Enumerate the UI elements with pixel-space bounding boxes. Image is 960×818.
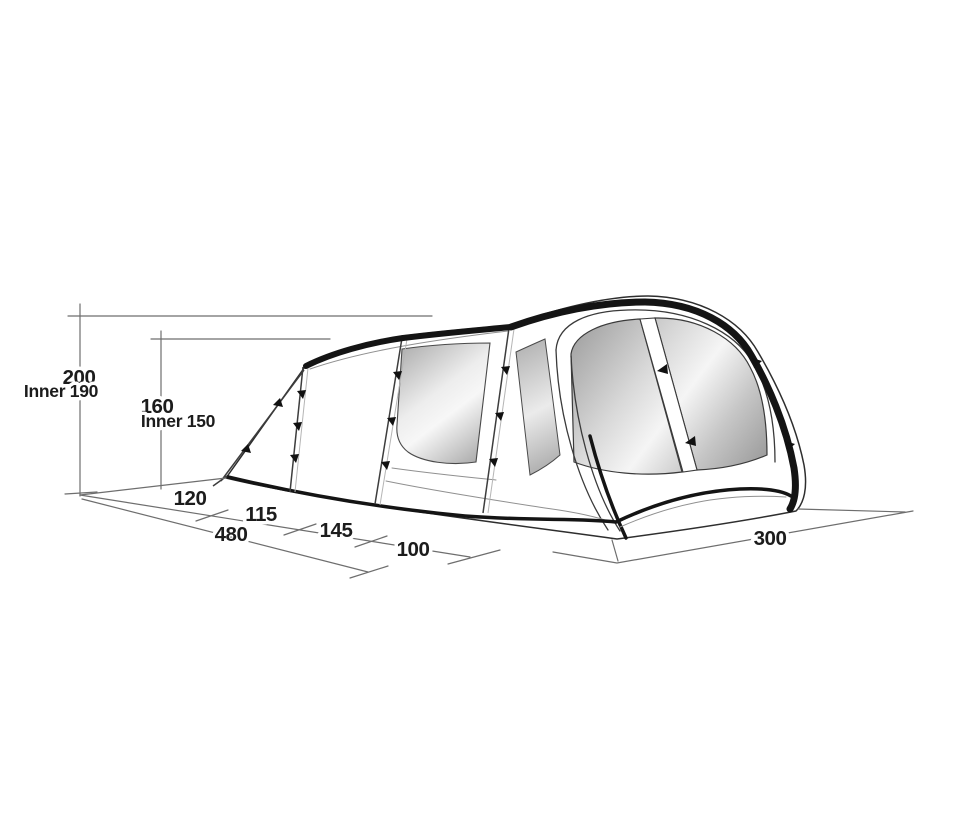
- seg-tick-end: [448, 550, 500, 564]
- stake-tick: [213, 476, 227, 486]
- label-inner-190: Inner 190: [24, 381, 99, 401]
- label-width-300: 300: [754, 527, 787, 550]
- tent-illustration: [213, 296, 806, 539]
- seg-tick-2: [284, 524, 316, 535]
- depth-480-end-tick: [350, 566, 388, 578]
- seg-tick-1: [196, 510, 228, 521]
- width-300-right-ext: [798, 509, 905, 512]
- seg-tick-3: [355, 536, 387, 547]
- label-depth-145: 145: [320, 519, 353, 542]
- diagram-canvas: 200 Inner 190 160 Inner 150 120 115 480 …: [0, 0, 960, 818]
- label-depth-120: 120: [174, 487, 207, 510]
- label-depth-100: 100: [397, 538, 430, 561]
- label-depth-480: 480: [215, 523, 248, 546]
- tent-dimension-diagram: 200 Inner 190 160 Inner 150 120 115 480 …: [0, 0, 960, 818]
- width-300-left-stub: [612, 540, 618, 561]
- side-window-glass: [397, 343, 490, 464]
- label-depth-115: 115: [245, 503, 277, 526]
- label-inner-150: Inner 150: [141, 411, 216, 431]
